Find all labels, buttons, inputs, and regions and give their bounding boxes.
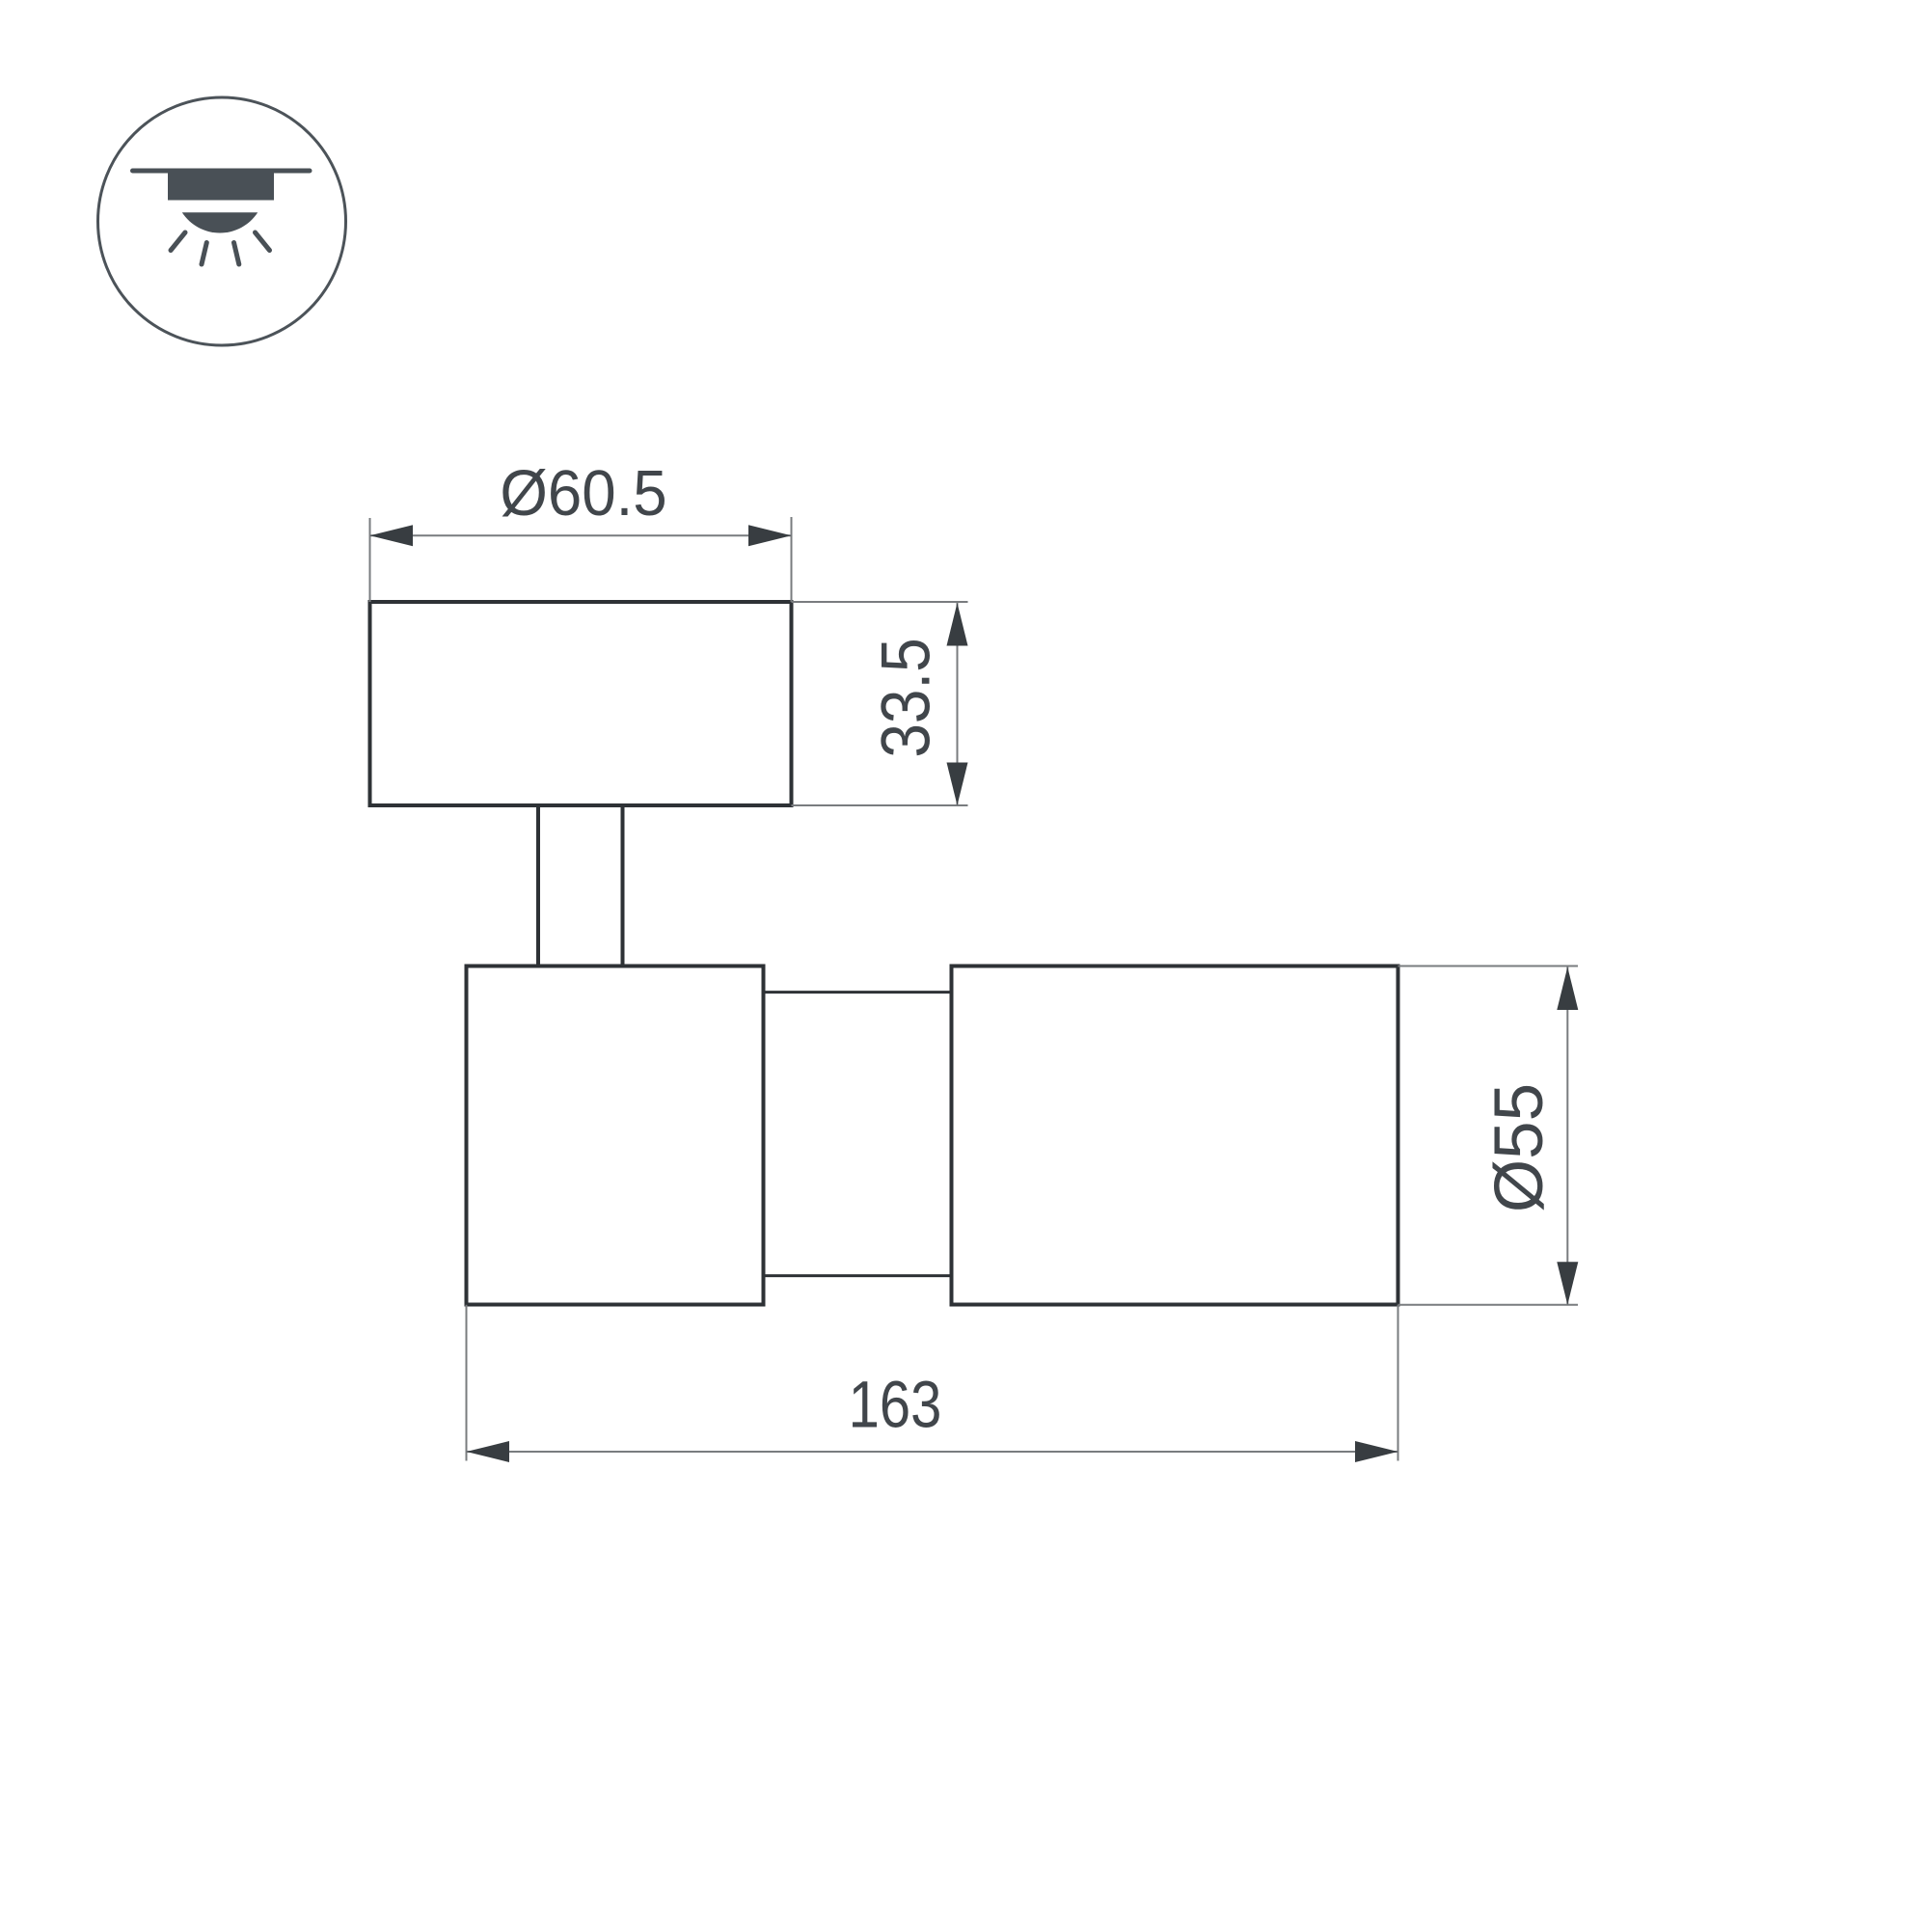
svg-text:Ø55: Ø55: [1481, 1083, 1558, 1212]
svg-text:33.5: 33.5: [868, 638, 944, 757]
svg-text:Ø60.5: Ø60.5: [500, 457, 666, 530]
svg-text:163: 163: [849, 1367, 942, 1442]
